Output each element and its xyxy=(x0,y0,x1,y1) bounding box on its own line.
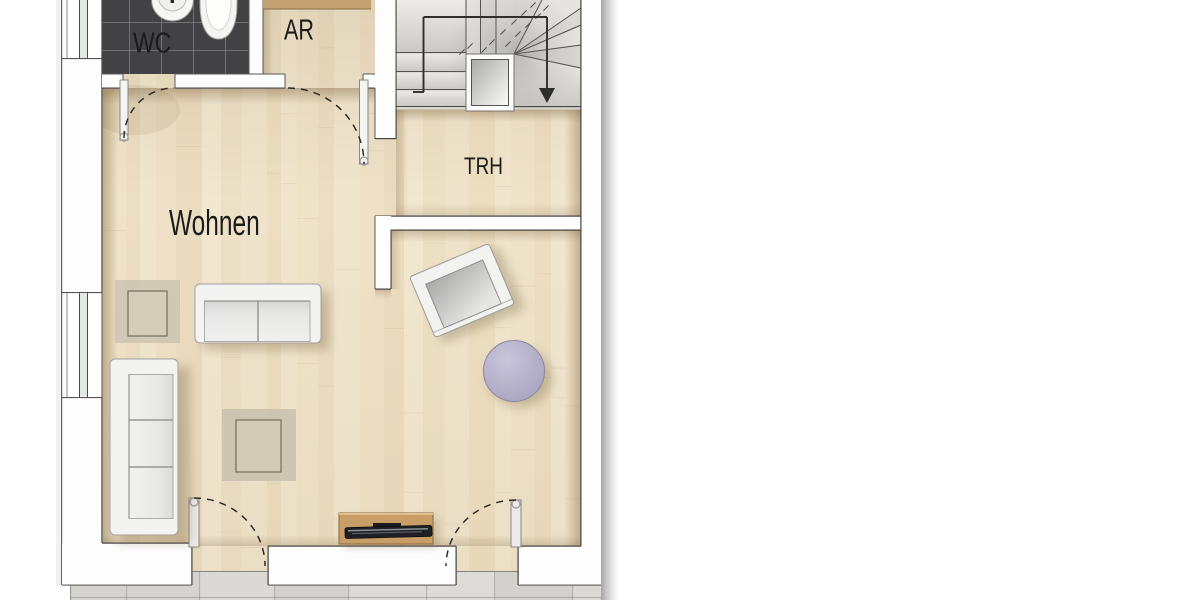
svg-text:TRH: TRH xyxy=(464,152,503,180)
svg-text:WC: WC xyxy=(133,26,171,59)
svg-text:Wohnen: Wohnen xyxy=(169,202,260,243)
svg-text:AR: AR xyxy=(284,15,314,47)
